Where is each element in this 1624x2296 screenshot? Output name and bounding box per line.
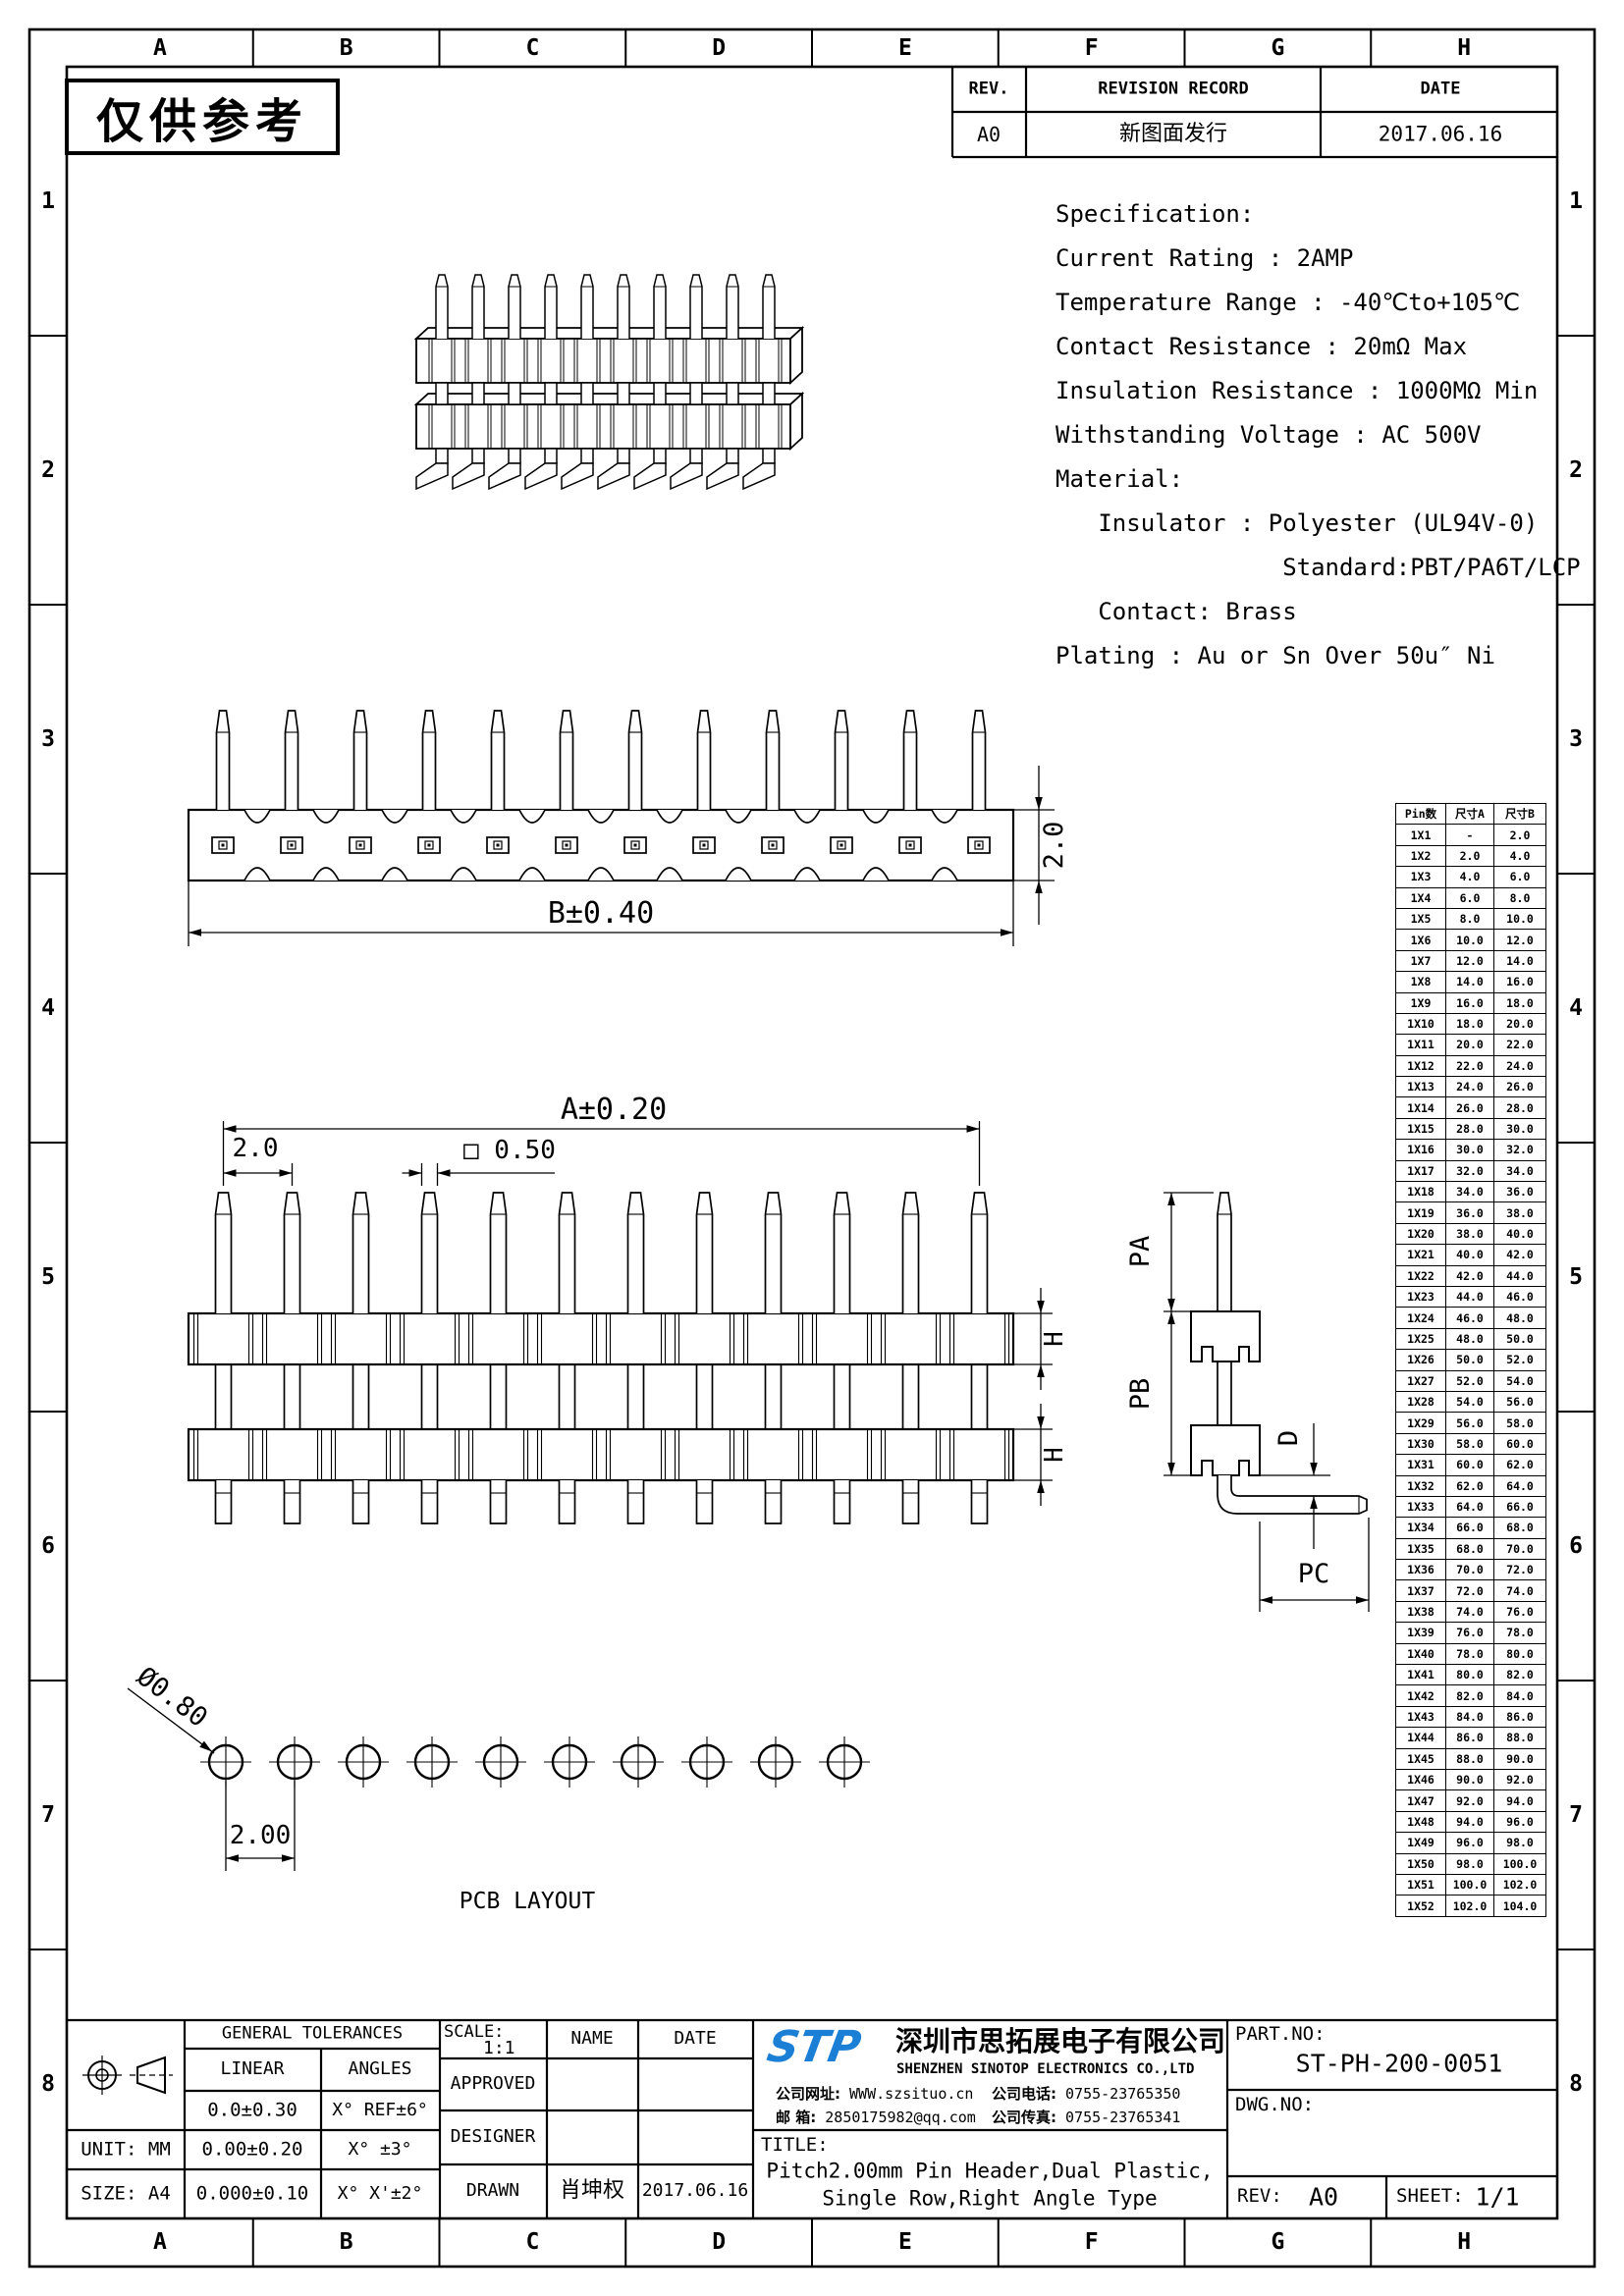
svg-text:Ø0.80: Ø0.80 (131, 1661, 213, 1734)
pin-table-cell: 1X13 (1396, 1077, 1446, 1097)
pin-table-row: 1X4690.092.0 (1396, 1769, 1546, 1789)
pin-table-cell: 1X49 (1396, 1833, 1446, 1853)
pin-table-row: 1X1528.030.0 (1396, 1118, 1546, 1139)
pin-table-cell: 1X10 (1396, 1013, 1446, 1034)
pin-table-cell: 68.0 (1494, 1518, 1546, 1538)
pin-table-row: 1X3160.062.0 (1396, 1455, 1546, 1475)
pin-table-cell: 52.0 (1494, 1350, 1546, 1370)
linear-tol-2: 0.00±0.20 (202, 2141, 303, 2160)
grid-ref-3: 3 (1569, 726, 1583, 752)
dwg-no-label: DWG.NO: (1235, 2096, 1314, 2114)
pin-table-cell: 104.0 (1494, 1896, 1546, 1916)
pin-table-cell: 94.0 (1494, 1790, 1546, 1811)
pin-table-row: 1X2752.054.0 (1396, 1370, 1546, 1391)
pin-table-cell: 1X37 (1396, 1580, 1446, 1601)
pin-table-cell: 1X22 (1396, 1265, 1446, 1286)
svg-text:2.00: 2.00 (230, 1821, 292, 1850)
pin-table-cell: 94.0 (1446, 1811, 1494, 1832)
pin-table-row: 1X1-2.0 (1396, 825, 1546, 845)
pin-table-cell: 22.0 (1494, 1035, 1546, 1055)
pin-table-row: 1X916.018.0 (1396, 992, 1546, 1013)
pin-table-cell: 38.0 (1446, 1223, 1494, 1244)
angle-tol-1: X° REF±6° (332, 2102, 428, 2119)
drawn-name: 肖坤权 (560, 2180, 624, 2202)
email-value: 2850175982@qq.com (825, 2109, 976, 2126)
pin-table-cell: 36.0 (1446, 1202, 1494, 1223)
pin-table-row: 1X4282.084.0 (1396, 1685, 1546, 1706)
top-view: B±0.402.0 (118, 687, 1080, 962)
fax-label: 公司传真: (992, 2109, 1056, 2126)
pin-table-row: 1X2650.052.0 (1396, 1350, 1546, 1370)
grid-ref-H: H (1457, 35, 1471, 61)
grid-ref-8: 8 (1569, 2071, 1583, 2097)
pin-table-cell: 56.0 (1494, 1391, 1546, 1412)
pin-table-cell: 90.0 (1446, 1769, 1494, 1789)
pin-table-cell: 100.0 (1494, 1853, 1546, 1874)
pin-table-cell: 1X31 (1396, 1455, 1446, 1475)
pin-table-cell: 1X18 (1396, 1182, 1446, 1202)
isometric-view (373, 245, 884, 540)
grid-ref-D: D (712, 35, 726, 61)
pin-table-cell: 78.0 (1494, 1623, 1546, 1643)
pin-table-cell: 58.0 (1494, 1413, 1546, 1433)
top-view-drawing: B±0.402.0 (118, 687, 1080, 962)
pin-table-cell: 8.0 (1446, 908, 1494, 929)
pin-table-cell: 18.0 (1446, 1013, 1494, 1034)
pin-table-cell: 24.0 (1446, 1077, 1494, 1097)
pin-table-row: 1X34.06.0 (1396, 867, 1546, 887)
grid-ref-4: 4 (41, 995, 55, 1021)
approved-label: APPROVED (451, 2075, 536, 2093)
pin-table-cell: 1X28 (1396, 1391, 1446, 1412)
pin-table-cell: 2.0 (1494, 825, 1546, 845)
pin-table-row: 1X814.016.0 (1396, 972, 1546, 992)
grid-ref-4: 4 (1569, 995, 1583, 1021)
grid-ref-A: A (153, 2229, 167, 2255)
pin-table-cell: 80.0 (1494, 1643, 1546, 1664)
website-label: 公司网址: (776, 2085, 840, 2103)
pin-table-cell: 46.0 (1446, 1308, 1494, 1328)
pin-table-row: 1X4792.094.0 (1396, 1790, 1546, 1811)
pin-table-cell: 72.0 (1446, 1580, 1494, 1601)
grid-ref-F: F (1085, 2229, 1099, 2255)
pin-table-cell: 40.0 (1494, 1223, 1546, 1244)
pin-table-row: 1X58.010.0 (1396, 908, 1546, 929)
pin-table-cell: 1X30 (1396, 1433, 1446, 1454)
pin-table-cell: 34.0 (1446, 1182, 1494, 1202)
pin-table-cell: 70.0 (1494, 1538, 1546, 1559)
pin-table-header-row: Pin数 尺寸A 尺寸B (1396, 804, 1546, 825)
angle-tol-3: X° X'±2° (338, 2185, 423, 2203)
pin-table-cell: 1X35 (1396, 1538, 1446, 1559)
pin-table-row: 1X1732.034.0 (1396, 1160, 1546, 1181)
pin-table-row: 1X4384.086.0 (1396, 1706, 1546, 1727)
pin-table-cell: 78.0 (1446, 1643, 1494, 1664)
svg-text:PC: PC (1298, 1559, 1330, 1589)
pin-table-cell: 64.0 (1494, 1475, 1546, 1496)
drawing-title-line2: Single Row,Right Angle Type (822, 2189, 1157, 2210)
grid-ref-6: 6 (41, 1533, 55, 1559)
pin-table-cell: 1X43 (1396, 1706, 1446, 1727)
pin-table-cell: 6.0 (1446, 887, 1494, 908)
rev-header: REV. (969, 81, 1009, 98)
pin-table-cell: 82.0 (1494, 1665, 1546, 1685)
pin-table-cell: 90.0 (1494, 1748, 1546, 1769)
pin-table-cell: 32.0 (1494, 1140, 1546, 1160)
isometric-view-drawing (373, 245, 884, 540)
pin-table-cell: 1X1 (1396, 825, 1446, 845)
pin-table-cell: 1X7 (1396, 950, 1446, 971)
grid-ref-E: E (898, 35, 912, 61)
pin-table-row: 1X3364.066.0 (1396, 1496, 1546, 1517)
pin-table-cell: - (1446, 825, 1494, 845)
pin-table-cell: 28.0 (1446, 1118, 1494, 1139)
revision-record-value: 新图面发行 (1119, 124, 1227, 145)
grid-ref-6: 6 (1569, 1533, 1583, 1559)
side-view: PAPBDPC (1119, 1129, 1394, 1679)
angles-header: ANGLES (348, 2060, 411, 2078)
pin-table-cell: 1X5 (1396, 908, 1446, 929)
pin-table-cell: 1X39 (1396, 1623, 1446, 1643)
pcb-layout-view: Ø0.802.00PCB LAYOUT (88, 1659, 972, 1944)
grid-ref-B: B (340, 35, 353, 61)
front-view-drawing: A±0.202.0□ 0.50HH (118, 1080, 1100, 1541)
pin-table-row: 1X4588.090.0 (1396, 1748, 1546, 1769)
pin-table-cell: 14.0 (1446, 972, 1494, 992)
pin-table-cell: 62.0 (1494, 1455, 1546, 1475)
pin-table-cell: 64.0 (1446, 1496, 1494, 1517)
pin-table-cell: 62.0 (1446, 1475, 1494, 1496)
pin-table-row: 1X52102.0104.0 (1396, 1896, 1546, 1916)
svg-text:PA: PA (1125, 1236, 1156, 1268)
pin-table-cell: 20.0 (1494, 1013, 1546, 1034)
pin-table-cell: 1X15 (1396, 1118, 1446, 1139)
date-header: DATE (1421, 81, 1461, 98)
email-label: 邮 箱: (776, 2109, 816, 2126)
pin-table-cell: 28.0 (1494, 1097, 1546, 1118)
linear-tol-1: 0.0±0.30 (207, 2102, 298, 2120)
pin-table-cell: 42.0 (1494, 1245, 1546, 1265)
pcb-layout-drawing: Ø0.802.00PCB LAYOUT (88, 1659, 972, 1944)
pin-table-cell: 84.0 (1494, 1685, 1546, 1706)
pin-table-cell: 48.0 (1446, 1328, 1494, 1349)
grid-ref-A: A (153, 35, 167, 61)
pin-table-cell: 100.0 (1446, 1874, 1494, 1895)
pin-table-cell: 1X29 (1396, 1413, 1446, 1433)
grid-ref-5: 5 (1569, 1264, 1583, 1290)
pin-table-cell: 26.0 (1446, 1097, 1494, 1118)
phone-label: 公司电话: (992, 2085, 1056, 2103)
pin-table-cell: 96.0 (1494, 1811, 1546, 1832)
pin-table-cell: 18.0 (1494, 992, 1546, 1013)
pin-table-cell: 58.0 (1446, 1433, 1494, 1454)
linear-tol-3: 0.000±0.10 (196, 2185, 308, 2204)
pin-table-row: 1X1936.038.0 (1396, 1202, 1546, 1223)
pin-table-cell: 22.0 (1446, 1055, 1494, 1076)
pin-table-cell: 80.0 (1446, 1665, 1494, 1685)
pin-table-cell: 30.0 (1494, 1118, 1546, 1139)
pin-table-row: 1X3670.072.0 (1396, 1560, 1546, 1580)
drawn-label: DRAWN (466, 2182, 519, 2200)
pin-table-row: 1X2038.040.0 (1396, 1223, 1546, 1244)
grid-ref-5: 5 (41, 1264, 55, 1290)
pin-table-cell: 1X6 (1396, 930, 1446, 950)
pin-table-cell: 54.0 (1446, 1391, 1494, 1412)
pin-table-cell: 1X23 (1396, 1286, 1446, 1307)
pin-table-row: 1X1426.028.0 (1396, 1097, 1546, 1118)
pin-table-row: 1X5098.0100.0 (1396, 1853, 1546, 1874)
svg-text:A±0.20: A±0.20 (561, 1093, 667, 1127)
pin-table-cell: 44.0 (1494, 1265, 1546, 1286)
pin-table-row: 1X2242.044.0 (1396, 1265, 1546, 1286)
svg-text:2.0: 2.0 (233, 1134, 279, 1163)
pin-table-cell: 96.0 (1446, 1833, 1494, 1853)
watermark-text: 仅供参考 (96, 82, 308, 151)
pin-table-cell: 60.0 (1494, 1433, 1546, 1454)
pin-table-cell: 1X17 (1396, 1160, 1446, 1181)
pin-table-cell: 1X27 (1396, 1370, 1446, 1391)
grid-ref-1: 1 (41, 188, 55, 214)
pin-table-cell: 92.0 (1446, 1790, 1494, 1811)
pin-table-cell: 1X52 (1396, 1896, 1446, 1916)
pin-table-row: 1X3466.068.0 (1396, 1518, 1546, 1538)
grid-ref-7: 7 (1569, 1802, 1583, 1828)
pin-table-cell: 84.0 (1446, 1706, 1494, 1727)
pin-table-cell: 1X47 (1396, 1790, 1446, 1811)
size-label: SIZE: A4 (81, 2185, 171, 2204)
pin-count-column-header: Pin数 (1396, 804, 1446, 825)
company-name-cn: 深圳市思拓展电子有限公司 (895, 2028, 1225, 2056)
pin-table-cell: 1X16 (1396, 1140, 1446, 1160)
pin-table-row: 1X22.04.0 (1396, 845, 1546, 866)
drawn-date: 2017.06.16 (642, 2182, 748, 2200)
svg-text:H: H (1040, 1447, 1069, 1463)
title-label: TITLE: (761, 2136, 829, 2155)
pin-table-cell: 16.0 (1446, 992, 1494, 1013)
grid-ref-G: G (1271, 35, 1284, 61)
projection-symbol-icon (77, 2048, 175, 2103)
pin-table-cell: 1X42 (1396, 1685, 1446, 1706)
grid-ref-C: C (525, 2229, 539, 2255)
dim-a-column-header: 尺寸A (1446, 804, 1494, 825)
pin-table-row: 1X2956.058.0 (1396, 1413, 1546, 1433)
pin-table-row: 1X46.08.0 (1396, 887, 1546, 908)
date-column-header: DATE (674, 2030, 716, 2048)
pin-table-row: 1X3568.070.0 (1396, 1538, 1546, 1559)
company-phone: 公司电话: 0755-23765350 (992, 2083, 1180, 2104)
grid-ref-G: G (1271, 2229, 1284, 2255)
pin-table-cell: 48.0 (1494, 1308, 1546, 1328)
pin-table-cell: 50.0 (1446, 1350, 1494, 1370)
pin-table-cell: 1X2 (1396, 845, 1446, 866)
svg-text:PB: PB (1125, 1378, 1156, 1411)
linear-header: LINEAR (220, 2060, 284, 2078)
pin-table-cell: 14.0 (1494, 950, 1546, 971)
company-name-en: SHENZHEN SINOTOP ELECTRONICS CO.,LTD (896, 2062, 1194, 2076)
pin-table-cell: 1X24 (1396, 1308, 1446, 1328)
pin-table-cell: 70.0 (1446, 1560, 1494, 1580)
svg-text:D: D (1273, 1430, 1304, 1446)
grid-ref-7: 7 (41, 1802, 55, 1828)
pin-table-cell: 74.0 (1494, 1580, 1546, 1601)
pin-table-cell: 16.0 (1494, 972, 1546, 992)
scale-value: 1:1 (483, 2040, 515, 2057)
pin-table-row: 1X3058.060.0 (1396, 1433, 1546, 1454)
specification-text: Specification: Current Rating : 2AMP Tem… (1056, 192, 1581, 678)
watermark-box: 仅供参考 (65, 79, 340, 155)
company-website: 公司网址: WWW.szsituo.cn (776, 2083, 973, 2104)
svg-text:PCB LAYOUT: PCB LAYOUT (460, 1889, 596, 1914)
designer-label: DESIGNER (451, 2128, 536, 2146)
revision-record-header: REVISION RECORD (1098, 81, 1249, 98)
pin-table-cell: 1X26 (1396, 1350, 1446, 1370)
grid-ref-2: 2 (41, 457, 55, 483)
pin-table-cell: 54.0 (1494, 1370, 1546, 1391)
name-header: NAME (570, 2030, 613, 2048)
pin-table-cell: 1X34 (1396, 1518, 1446, 1538)
rev-value-titleblock: A0 (1309, 2185, 1338, 2210)
pin-table-cell: 1X36 (1396, 1560, 1446, 1580)
pin-table-cell: 1X44 (1396, 1728, 1446, 1748)
pin-table-cell: 38.0 (1494, 1202, 1546, 1223)
company-fax: 公司传真: 0755-23765341 (992, 2107, 1180, 2127)
pin-table-cell: 12.0 (1494, 930, 1546, 950)
grid-ref-8: 8 (41, 2071, 55, 2097)
pin-table-cell: 50.0 (1494, 1328, 1546, 1349)
pin-table-cell: 86.0 (1446, 1728, 1494, 1748)
pin-table-cell: 66.0 (1494, 1496, 1546, 1517)
pin-table-row: 1X1018.020.0 (1396, 1013, 1546, 1034)
pin-table-cell: 1X20 (1396, 1223, 1446, 1244)
pin-table-row: 1X4894.096.0 (1396, 1811, 1546, 1832)
pin-table-row: 1X1324.026.0 (1396, 1077, 1546, 1097)
pin-table-row: 1X1834.036.0 (1396, 1182, 1546, 1202)
pin-table-cell: 2.0 (1446, 845, 1494, 866)
pin-table-cell: 76.0 (1446, 1623, 1494, 1643)
pin-table-cell: 10.0 (1494, 908, 1546, 929)
pin-table-row: 1X3772.074.0 (1396, 1580, 1546, 1601)
pin-table-cell: 1X9 (1396, 992, 1446, 1013)
fax-value: 0755-23765341 (1065, 2109, 1180, 2126)
pin-table-cell: 4.0 (1446, 867, 1494, 887)
pin-table-cell: 30.0 (1446, 1140, 1494, 1160)
pin-table-row: 1X4180.082.0 (1396, 1665, 1546, 1685)
pin-table-cell: 1X40 (1396, 1643, 1446, 1664)
revision-date-value: 2017.06.16 (1379, 125, 1502, 145)
front-view: A±0.202.0□ 0.50HH (118, 1080, 1100, 1541)
pin-table-cell: 1X21 (1396, 1245, 1446, 1265)
pin-table-cell: 46.0 (1494, 1286, 1546, 1307)
svg-text:B±0.40: B±0.40 (548, 896, 654, 931)
pin-table-cell: 1X4 (1396, 887, 1446, 908)
pin-table-cell: 1X32 (1396, 1475, 1446, 1496)
drawing-title-line1: Pitch2.00mm Pin Header,Dual Plastic, (766, 2162, 1213, 2182)
pin-table-cell: 1X33 (1396, 1496, 1446, 1517)
pin-table-cell: 74.0 (1446, 1601, 1494, 1622)
pin-table-cell: 52.0 (1446, 1370, 1494, 1391)
pin-table-row: 1X610.012.0 (1396, 930, 1546, 950)
pin-table-cell: 1X25 (1396, 1328, 1446, 1349)
pin-table-cell: 24.0 (1494, 1055, 1546, 1076)
pin-table-cell: 1X45 (1396, 1748, 1446, 1769)
pin-table-cell: 26.0 (1494, 1077, 1546, 1097)
pin-table-cell: 12.0 (1446, 950, 1494, 971)
pin-table-cell: 1X3 (1396, 867, 1446, 887)
pin-table-cell: 6.0 (1494, 867, 1546, 887)
pin-table-cell: 20.0 (1446, 1035, 1494, 1055)
pin-table-row: 1X3874.076.0 (1396, 1601, 1546, 1622)
pin-table-row: 1X2854.056.0 (1396, 1391, 1546, 1412)
drawing-sheet: 仅供参考 REV. REVISION RECORD DATE A0 新图面发行 … (0, 0, 1624, 2296)
pin-table-row: 1X4078.080.0 (1396, 1643, 1546, 1664)
pin-table-cell: 60.0 (1446, 1455, 1494, 1475)
pin-table-cell: 1X14 (1396, 1097, 1446, 1118)
pin-table-cell: 36.0 (1494, 1182, 1546, 1202)
grid-ref-H: H (1457, 2229, 1471, 2255)
pin-table-cell: 42.0 (1446, 1265, 1494, 1286)
pin-table-cell: 72.0 (1494, 1560, 1546, 1580)
pin-table-row: 1X51100.0102.0 (1396, 1874, 1546, 1895)
pin-table-row: 1X2446.048.0 (1396, 1308, 1546, 1328)
pin-table-cell: 4.0 (1494, 845, 1546, 866)
pin-table-cell: 34.0 (1494, 1160, 1546, 1181)
pin-table-row: 1X3262.064.0 (1396, 1475, 1546, 1496)
grid-ref-2: 2 (1569, 457, 1583, 483)
pin-table-row: 1X3976.078.0 (1396, 1623, 1546, 1643)
pin-table-cell: 1X12 (1396, 1055, 1446, 1076)
pin-table-cell: 1X50 (1396, 1853, 1446, 1874)
pin-table-cell: 102.0 (1494, 1874, 1546, 1895)
pin-table-cell: 88.0 (1494, 1728, 1546, 1748)
pin-table-row: 1X4486.088.0 (1396, 1728, 1546, 1748)
svg-text:H: H (1040, 1331, 1069, 1347)
pin-table-cell: 92.0 (1494, 1769, 1546, 1789)
pin-table-row: 1X1120.022.0 (1396, 1035, 1546, 1055)
pin-table-cell: 32.0 (1446, 1160, 1494, 1181)
grid-ref-1: 1 (1569, 188, 1583, 214)
pin-table-cell: 56.0 (1446, 1413, 1494, 1433)
sheet-value: 1/1 (1475, 2185, 1519, 2210)
rev-label: REV: (1237, 2187, 1282, 2206)
pin-table-row: 1X2140.042.0 (1396, 1245, 1546, 1265)
pin-table-row: 1X2548.050.0 (1396, 1328, 1546, 1349)
pin-table-cell: 102.0 (1446, 1896, 1494, 1916)
pin-table-cell: 88.0 (1446, 1748, 1494, 1769)
grid-ref-D: D (712, 2229, 726, 2255)
pin-table-cell: 10.0 (1446, 930, 1494, 950)
svg-text:2.0: 2.0 (1039, 822, 1069, 870)
pin-table-cell: 1X11 (1396, 1035, 1446, 1055)
pin-table-row: 1X2344.046.0 (1396, 1286, 1546, 1307)
pin-table-cell: 82.0 (1446, 1685, 1494, 1706)
grid-ref-C: C (525, 35, 539, 61)
pin-table-row: 1X1222.024.0 (1396, 1055, 1546, 1076)
pin-table-cell: 8.0 (1494, 887, 1546, 908)
phone-value: 0755-23765350 (1065, 2085, 1180, 2103)
pin-table-cell: 1X46 (1396, 1769, 1446, 1789)
sheet-label: SHEET: (1396, 2187, 1464, 2206)
pin-table-cell: 1X8 (1396, 972, 1446, 992)
pin-table-cell: 1X19 (1396, 1202, 1446, 1223)
grid-ref-B: B (340, 2229, 353, 2255)
pin-table-cell: 98.0 (1446, 1853, 1494, 1874)
pin-table-row: 1X712.014.0 (1396, 950, 1546, 971)
angle-tol-2: X° ±3° (348, 2141, 411, 2159)
pin-table-cell: 1X38 (1396, 1601, 1446, 1622)
part-no-label: PART.NO: (1235, 2025, 1326, 2044)
pin-table-row: 1X4996.098.0 (1396, 1833, 1546, 1853)
part-no-value: ST-PH-200-0051 (1296, 2052, 1503, 2076)
